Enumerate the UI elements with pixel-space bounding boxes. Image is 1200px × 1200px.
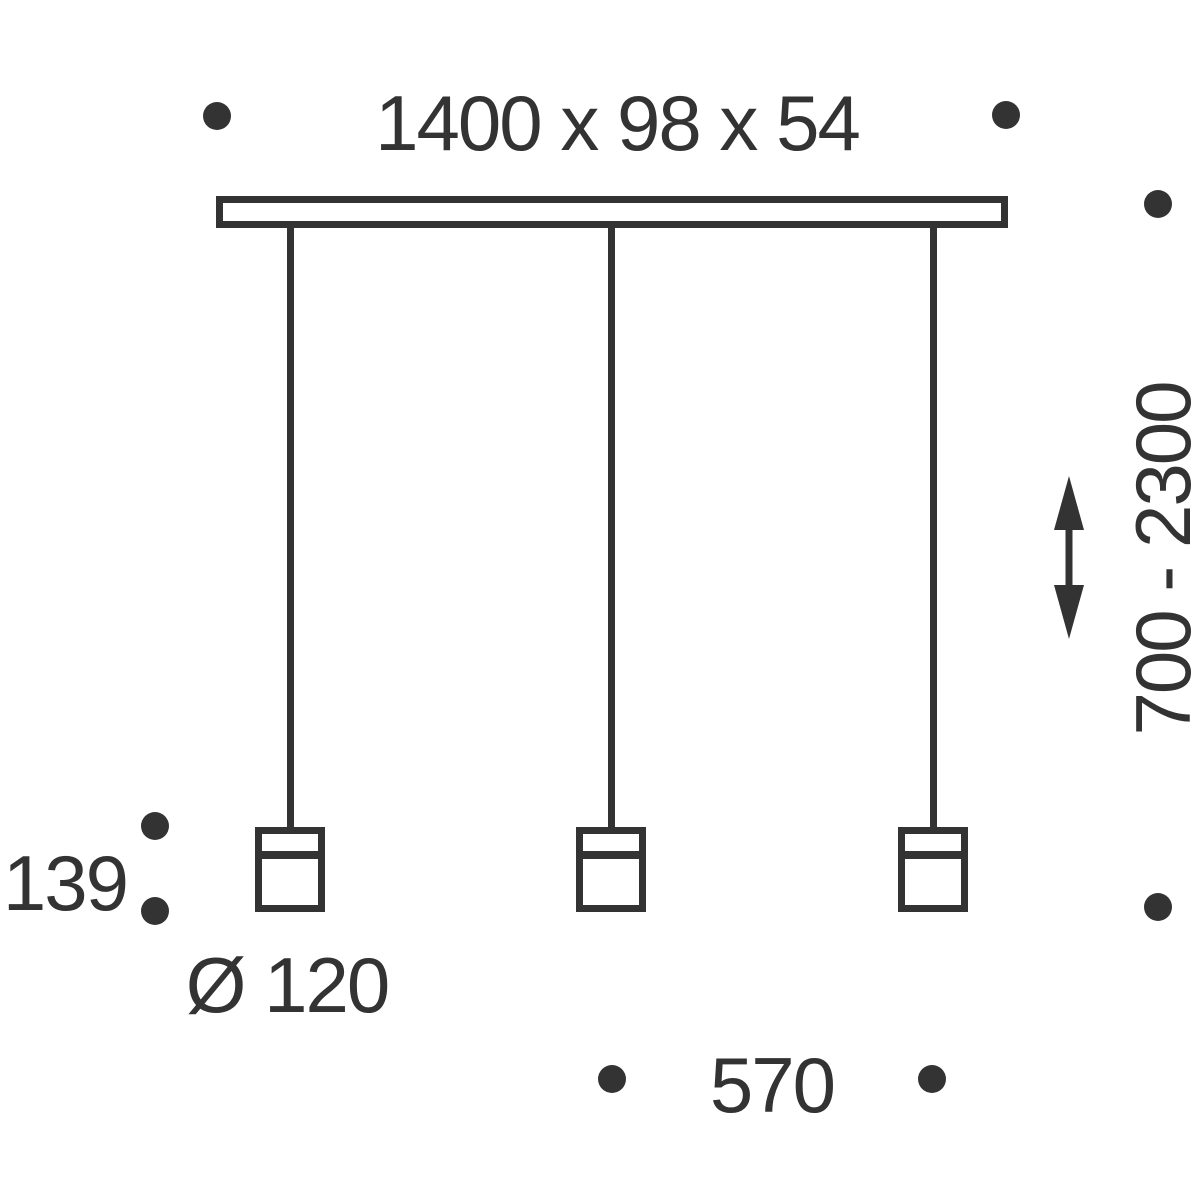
suspension-cable: [287, 228, 294, 828]
shade-seam: [905, 851, 961, 859]
double-vertical-arrow-icon: [1051, 476, 1087, 639]
pendant-right: [898, 228, 968, 912]
dot-icon: [141, 897, 169, 925]
dot-icon: [203, 102, 231, 130]
lamp-shade: [255, 827, 325, 912]
dot-icon: [598, 1065, 626, 1093]
canopy-dimensions-label: 1400 x 98 x 54: [297, 84, 937, 162]
lamp-spacing-label: 570: [672, 1046, 872, 1124]
dot-icon: [141, 812, 169, 840]
dot-icon: [992, 101, 1020, 129]
pendant-height-label: 139: [0, 844, 130, 922]
ceiling-canopy: [216, 196, 1008, 228]
lamp-shade: [576, 827, 646, 912]
dot-icon: [1144, 893, 1172, 921]
shade-seam: [262, 851, 318, 859]
pendant-middle: [576, 228, 646, 912]
lamp-shade: [898, 827, 968, 912]
shade-diameter-label: Ø 120: [157, 946, 417, 1024]
pendant-lamp-dimension-diagram: 1400 x 98 x 54 700 - 2300 139 Ø 120 570: [0, 0, 1200, 1200]
dot-icon: [1144, 190, 1172, 218]
suspension-cable: [930, 228, 937, 828]
shade-seam: [583, 851, 639, 859]
dot-icon: [918, 1065, 946, 1093]
pendant-left: [255, 228, 325, 912]
suspension-height-range-label: 700 - 2300: [1123, 349, 1200, 769]
suspension-cable: [608, 228, 615, 828]
